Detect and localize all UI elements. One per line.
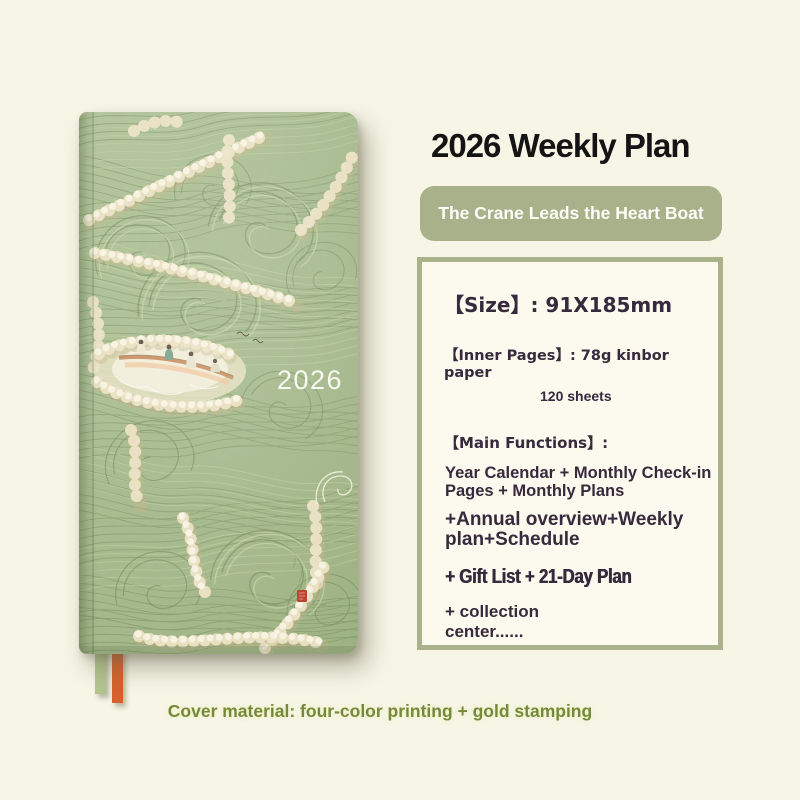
spec-inner-pages: 【Inner Pages】: 78g kinbor paper: [444, 344, 718, 381]
tagline-text: The Crane Leads the Heart Boat: [438, 203, 703, 224]
spec-function-item: + Gift List + 21-Day Plan: [445, 565, 631, 589]
spec-sheet-count: 120 sheets: [540, 388, 612, 404]
product-tagline-badge: The Crane Leads the Heart Boat: [420, 186, 722, 241]
spec-function-item: +Annual overview+Weekly plan+Schedule: [445, 510, 685, 550]
spec-function-item: + collection center......: [445, 602, 615, 641]
spec-box: 【Size】: 91X185mm 【Inner Pages】: 78g kinb…: [417, 257, 723, 650]
cover-material-caption: Cover material: four-color printing + go…: [60, 701, 700, 722]
product-title: 2026 Weekly Plan: [431, 127, 690, 165]
spec-size: 【Size】: 91X185mm: [444, 289, 672, 318]
spec-function-item: Year Calendar + Monthly Check-in Pages +…: [445, 465, 719, 500]
notebook-cover: 2026: [79, 112, 358, 654]
spec-main-functions-label: 【Main Functions】:: [444, 432, 608, 453]
cover-art-illustration: 2026: [79, 112, 358, 654]
cover-sheen: [79, 112, 358, 654]
product-promo-image: 2026 2026 Weekly Plan The Crane Leads th…: [0, 0, 800, 800]
bookmark-ribbon-orange: [112, 646, 123, 703]
